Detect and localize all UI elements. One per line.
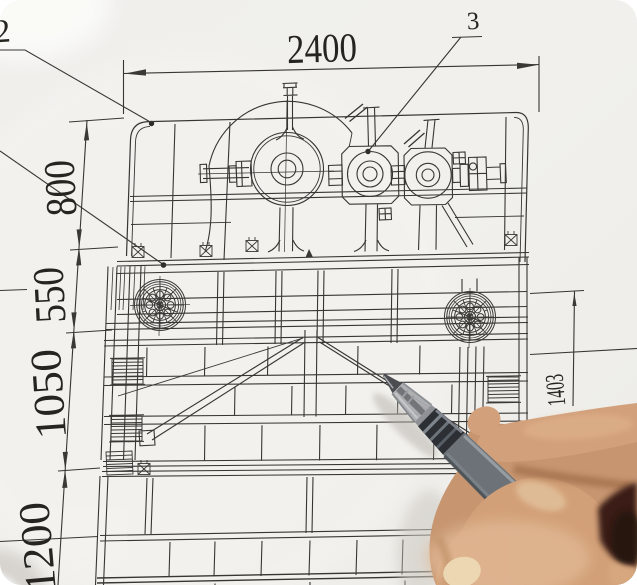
svg-text:3: 3	[466, 8, 480, 36]
svg-text:1200: 1200	[9, 500, 66, 585]
svg-text:550: 550	[24, 266, 76, 324]
svg-text:800: 800	[35, 159, 87, 217]
svg-text:1050: 1050	[21, 347, 76, 440]
svg-text:2400: 2400	[286, 24, 357, 72]
svg-text:1403: 1403	[540, 373, 572, 407]
